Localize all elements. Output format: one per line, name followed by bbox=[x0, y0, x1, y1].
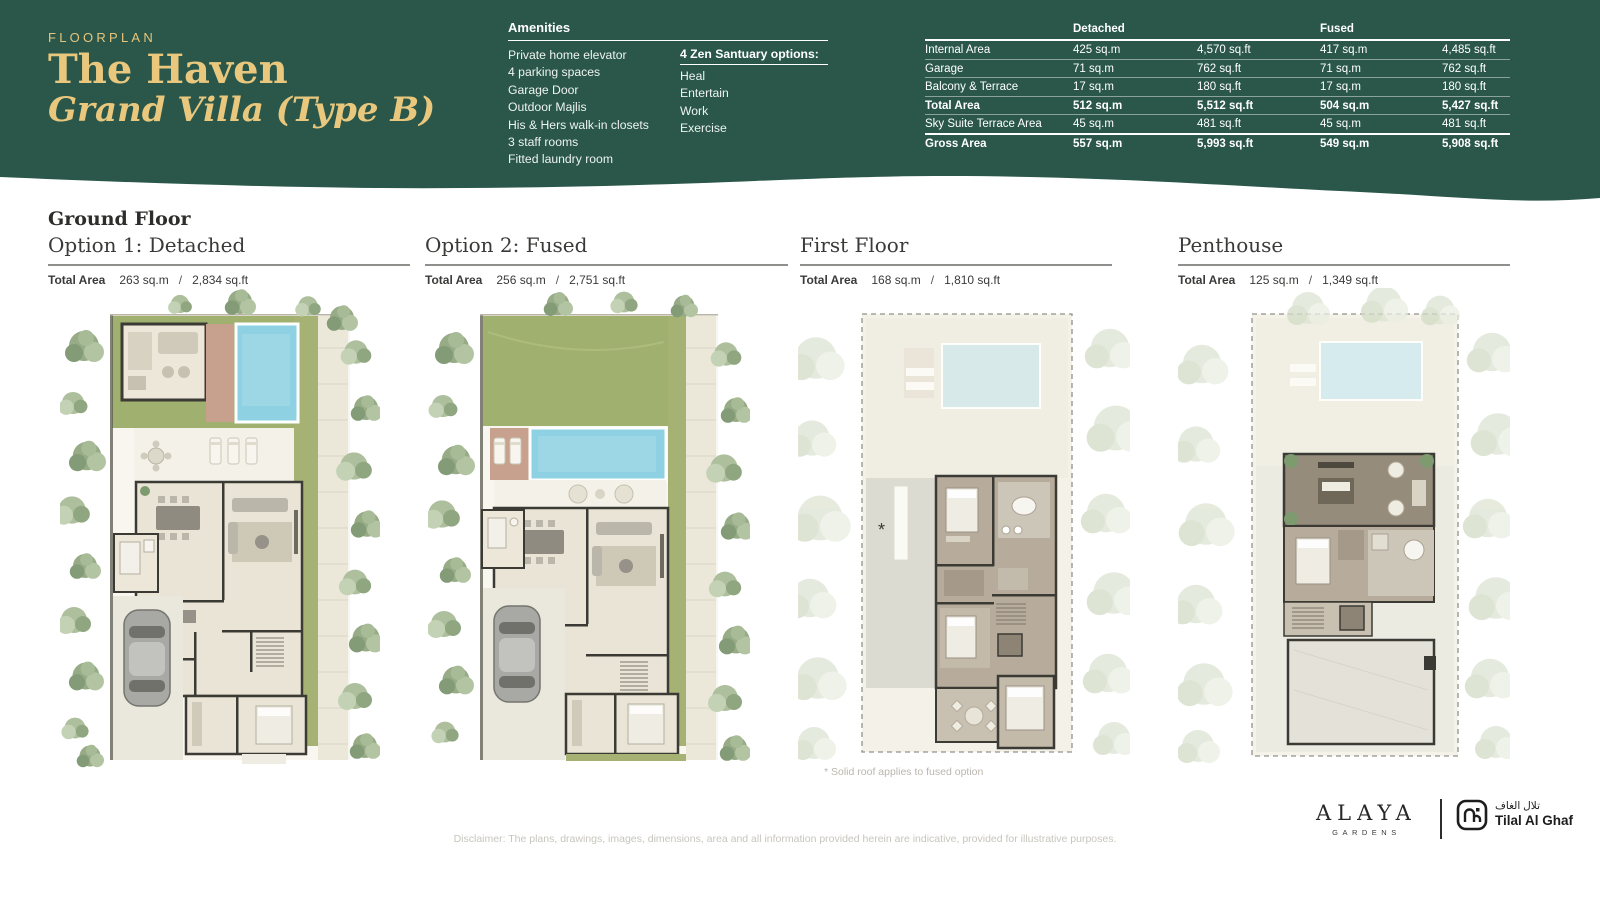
total-area-line: Total Area125 sq.m/1,349 sq.ft bbox=[1178, 273, 1510, 287]
amenities-list: Private home elevator 4 parking spaces G… bbox=[508, 47, 680, 169]
master-bathroom bbox=[998, 482, 1050, 538]
bedroom-wing bbox=[186, 696, 306, 754]
roof-note-marker: * bbox=[878, 520, 885, 540]
tilal-arch-icon bbox=[1456, 799, 1488, 831]
amenity-item: Fitted laundry room bbox=[508, 151, 680, 168]
bedroom-wing bbox=[566, 694, 678, 754]
tree-blobs-top bbox=[1287, 288, 1460, 325]
landing-and-lift bbox=[1284, 602, 1372, 636]
indoor-plant bbox=[140, 486, 150, 496]
zen-option: Entertain bbox=[680, 85, 828, 102]
car-icon bbox=[124, 610, 170, 706]
total-area-line: Total Area168 sq.m/1,810 sq.ft bbox=[800, 273, 1112, 287]
lawn-strip-right bbox=[668, 316, 686, 746]
amenity-item: 4 parking spaces bbox=[508, 64, 680, 81]
page-subtitle: Grand Villa (Type B) bbox=[48, 93, 435, 129]
paver-walkway bbox=[686, 316, 716, 760]
pool-deck-brick bbox=[206, 324, 234, 422]
canopy bbox=[894, 486, 908, 560]
ground-floor-heading: Ground Floor bbox=[48, 208, 191, 230]
tree-border-left bbox=[60, 330, 106, 767]
total-area-line: Total Area256 sq.m/2,751 sq.ft bbox=[425, 273, 788, 287]
staff-room bbox=[114, 534, 158, 592]
staff-room bbox=[482, 510, 524, 568]
plan-title: First Floor bbox=[800, 233, 1112, 266]
hero-banner: FLOORPLAN The Haven Grand Villa (Type B)… bbox=[0, 0, 1600, 210]
zen-options-title: 4 Zen Santuary options: bbox=[680, 47, 828, 65]
pool-deck-brick bbox=[490, 428, 530, 480]
table-row-total-area: Total Area 512 sq.m 5,512 sq.ft 504 sq.m… bbox=[925, 97, 1510, 116]
plan-header-penthouse: Penthouse Total Area125 sq.m/1,349 sq.ft bbox=[1178, 233, 1510, 287]
zen-option: Exercise bbox=[680, 120, 828, 137]
table-row: Garage 71 sq.m 762 sq.ft 71 sq.m 762 sq.… bbox=[925, 60, 1510, 79]
living-area bbox=[228, 498, 298, 562]
hero-title-block: FLOORPLAN The Haven Grand Villa (Type B) bbox=[48, 30, 435, 129]
plan-header-first-floor: First Floor Total Area168 sq.m/1,810 sq.… bbox=[800, 233, 1112, 287]
bedroom-2 bbox=[940, 608, 990, 668]
tree-blobs-right bbox=[1463, 333, 1510, 759]
plan-title: Penthouse bbox=[1178, 233, 1510, 266]
amenity-item: His & Hers walk-in closets bbox=[508, 117, 680, 134]
plan-drawing-first-floor: * bbox=[798, 288, 1130, 785]
zen-options-panel: 4 Zen Santuary options: Heal Entertain W… bbox=[680, 47, 828, 169]
amenity-item: 3 staff rooms bbox=[508, 134, 680, 151]
floorplan-brochure-page: FLOORPLAN The Haven Grand Villa (Type B)… bbox=[0, 0, 1600, 900]
lift bbox=[998, 634, 1022, 656]
amenity-item: Outdoor Majlis bbox=[508, 99, 680, 116]
plan-title: Option 2: Fused bbox=[425, 233, 788, 266]
tree-blobs-left bbox=[798, 337, 851, 760]
total-area-line: Total Area263 sq.m/2,834 sq.ft bbox=[48, 273, 410, 287]
amenity-item: Private home elevator bbox=[508, 47, 680, 64]
amenities-title: Amenities bbox=[508, 20, 828, 41]
patio-deck bbox=[134, 428, 294, 482]
guest-bedroom bbox=[998, 676, 1054, 748]
tree-blobs-left bbox=[1178, 345, 1235, 763]
area-summary-table: Detached Fused Internal Area 425 sq.m 4,… bbox=[925, 20, 1510, 152]
car-icon bbox=[494, 606, 540, 702]
alaya-wordmark: ALAYA bbox=[1316, 801, 1417, 825]
tree-blobs-right bbox=[1081, 329, 1130, 755]
tree-border-top bbox=[544, 292, 698, 318]
tilal-english-name: Tilal Al Ghaf bbox=[1495, 813, 1573, 829]
boundary-wall bbox=[110, 314, 113, 760]
laundry bbox=[998, 568, 1028, 590]
lower-roof bbox=[1288, 640, 1436, 744]
disclaimer-text: Disclaimer: The plans, drawings, images,… bbox=[385, 833, 1185, 845]
table-row-gross-area: Gross Area 557 sq.m 5,993 sq.ft 549 sq.m… bbox=[925, 135, 1510, 153]
logo-divider bbox=[1440, 799, 1442, 839]
table-header-row: Detached Fused bbox=[925, 20, 1510, 41]
page-title: The Haven bbox=[48, 49, 435, 91]
swimming-pool bbox=[530, 428, 666, 480]
zen-option: Work bbox=[680, 103, 828, 120]
patio-deck bbox=[494, 480, 666, 508]
lawn-strip-bottom bbox=[566, 754, 686, 761]
alaya-gardens-logo: ALAYA GARDENS bbox=[1316, 801, 1417, 837]
eyebrow-label: FLOORPLAN bbox=[48, 30, 435, 45]
table-row: Balcony & Terrace 17 sq.m 180 sq.ft 17 s… bbox=[925, 78, 1510, 97]
plan-title: Option 1: Detached bbox=[48, 233, 410, 266]
outdoor-majlis bbox=[122, 324, 206, 400]
plan-drawing-penthouse bbox=[1178, 288, 1510, 785]
roof-footnote: * Solid roof applies to fused option bbox=[824, 766, 983, 778]
amenities-panel: Amenities Private home elevator 4 parkin… bbox=[508, 20, 828, 169]
tilal-arabic-name: تلال الغاف bbox=[1495, 801, 1573, 813]
zen-options-list: Heal Entertain Work Exercise bbox=[680, 68, 828, 138]
table-row: Internal Area 425 sq.m 4,570 sq.ft 417 s… bbox=[925, 41, 1510, 60]
tilal-al-ghaf-logo: تلال الغاف Tilal Al Ghaf bbox=[1456, 799, 1573, 831]
plan-drawing-ground-detached bbox=[60, 288, 380, 785]
plan-drawing-ground-fused bbox=[428, 288, 750, 785]
lawn bbox=[483, 316, 669, 426]
plan-header-option1: Option 1: Detached Total Area263 sq.m/2,… bbox=[48, 233, 410, 287]
column-header-fused: Fused bbox=[1320, 23, 1442, 35]
entry-pad bbox=[242, 754, 286, 764]
tree-border-left bbox=[428, 332, 475, 743]
alaya-sub-label: GARDENS bbox=[1316, 828, 1417, 837]
walk-in-closet bbox=[944, 570, 984, 596]
zen-option: Heal bbox=[680, 68, 828, 85]
amenity-item: Garage Door bbox=[508, 82, 680, 99]
house-footprint bbox=[936, 476, 1056, 688]
column-header-detached: Detached bbox=[1073, 23, 1197, 35]
swimming-pool bbox=[236, 324, 298, 422]
sky-suite-bedroom bbox=[1284, 526, 1434, 602]
plan-header-option2: Option 2: Fused Total Area256 sq.m/2,751… bbox=[425, 233, 788, 287]
table-row: Sky Suite Terrace Area 45 sq.m 481 sq.ft… bbox=[925, 115, 1510, 135]
sky-suite-terrace bbox=[1284, 454, 1434, 526]
